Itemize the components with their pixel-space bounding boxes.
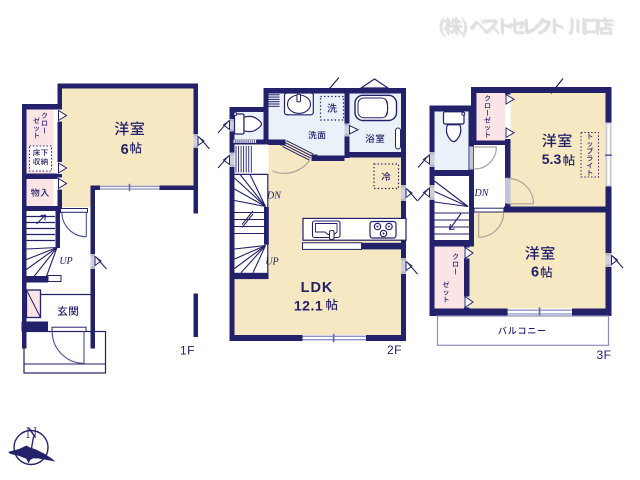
svg-text:DN: DN: [474, 188, 490, 199]
svg-text:3F: 3F: [596, 348, 611, 362]
svg-text:6: 6: [121, 142, 129, 158]
svg-text:UP: UP: [265, 257, 278, 268]
svg-text:LDK: LDK: [301, 280, 334, 296]
svg-text:N: N: [26, 425, 38, 442]
svg-text:UP: UP: [59, 256, 72, 267]
svg-text:6: 6: [531, 265, 539, 281]
svg-text:2F: 2F: [387, 343, 402, 357]
svg-text:12.1: 12.1: [294, 297, 323, 313]
svg-text:5.3: 5.3: [542, 151, 562, 167]
svg-text:DN: DN: [266, 191, 282, 202]
svg-text:1F: 1F: [180, 344, 195, 358]
